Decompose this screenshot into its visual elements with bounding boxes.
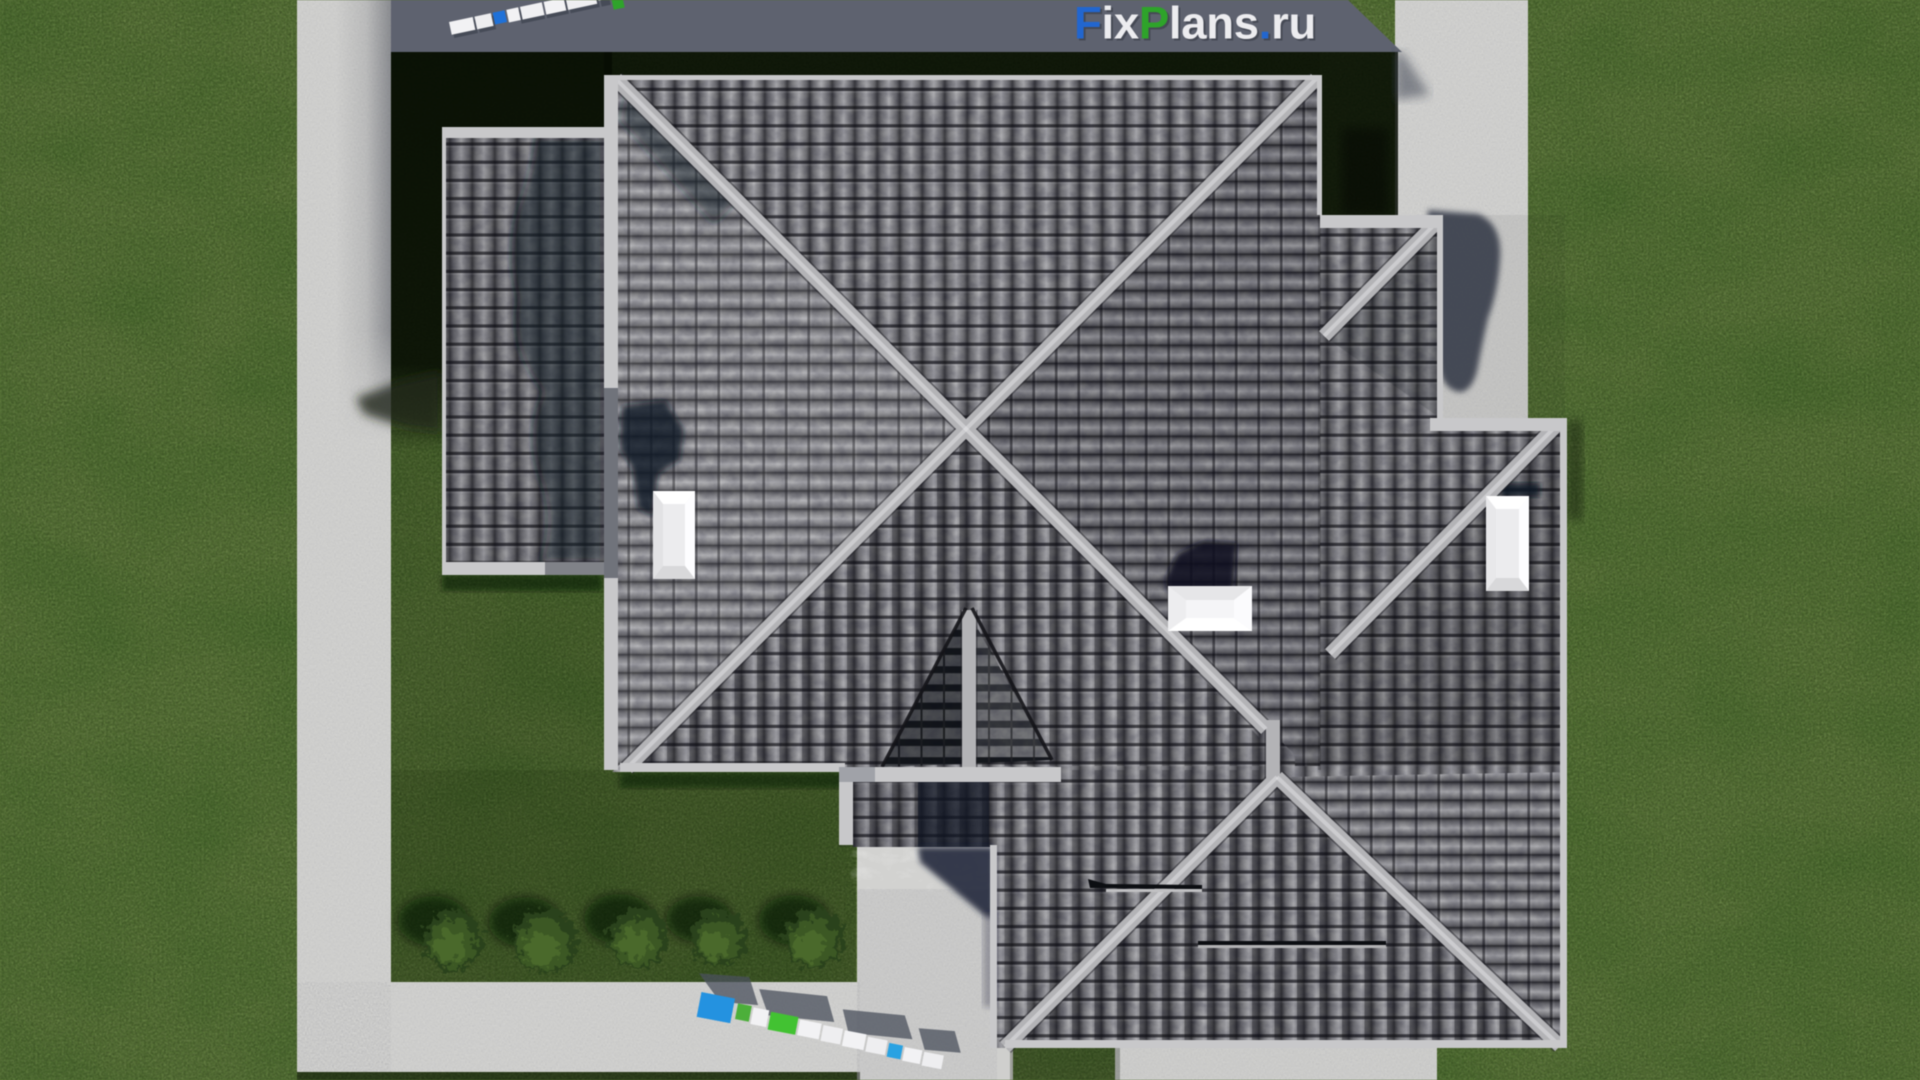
svg-text:FixPlans.ru: FixPlans.ru	[1074, 0, 1316, 49]
